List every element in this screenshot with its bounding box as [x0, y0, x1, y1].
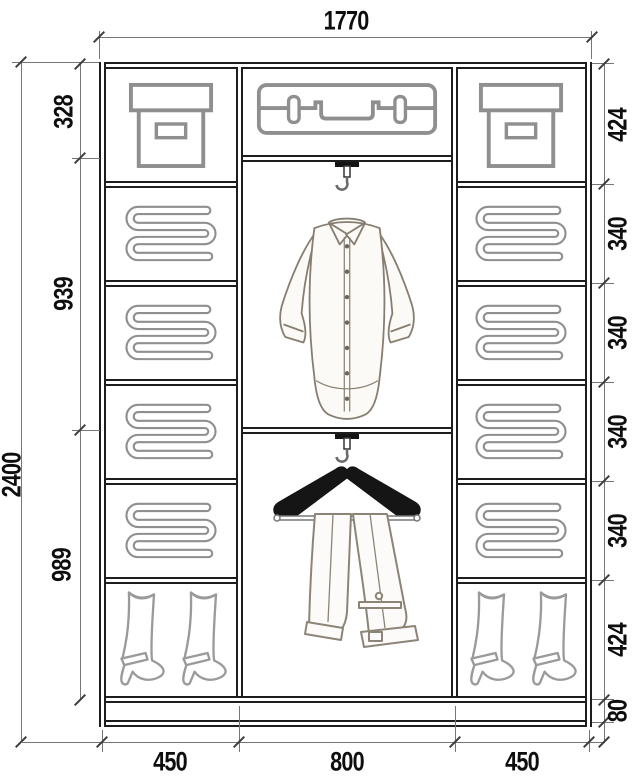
- shelf-left-1: [106, 181, 236, 188]
- boots-icon: [526, 587, 580, 693]
- boots-icon: [464, 587, 518, 693]
- dim-label-bottom-width: 800: [330, 749, 364, 776]
- dim-label-bottom-width: 450: [153, 749, 187, 776]
- folded-clothes-icon: [118, 499, 224, 561]
- shelf-right-1: [458, 181, 585, 188]
- extension-line: [12, 62, 99, 63]
- shelf-right-3: [458, 379, 585, 386]
- dim-line-left-chain: [80, 64, 81, 700]
- dim-line-left-overall: [21, 62, 22, 742]
- extension-line: [239, 706, 240, 752]
- dim-label-right-section: 424: [605, 623, 632, 657]
- cabinet-right-wall: [585, 62, 592, 727]
- dim-label-right-section: 340: [605, 217, 632, 251]
- dim-line-top: [99, 37, 592, 38]
- dim-label-right-section: 340: [605, 316, 632, 350]
- storage-box-icon: [478, 76, 564, 172]
- folded-clothes-icon: [118, 400, 224, 462]
- shelf-center-middle: [243, 427, 451, 434]
- shirt-icon: [256, 190, 438, 426]
- folded-clothes-icon: [118, 202, 224, 264]
- dim-label-right-section: 340: [605, 514, 632, 548]
- folded-clothes-icon: [468, 400, 574, 462]
- dim-label-center-section: 939: [51, 277, 78, 311]
- cabinet-top-edge: [99, 62, 592, 69]
- wardrobe-dimension-scheme: 1770 2400 328 939 989 424 340 340 340 34…: [0, 0, 632, 780]
- dim-label-overall-height: 2400: [0, 453, 26, 498]
- folded-clothes-icon: [468, 202, 574, 264]
- shelf-right-2: [458, 280, 585, 287]
- dim-label-center-section: 328: [51, 95, 78, 129]
- cabinet-left-wall: [99, 62, 106, 727]
- trousers-on-hanger-icon: [257, 462, 437, 672]
- shelf-left-2: [106, 280, 236, 287]
- dim-label-right-section: 424: [605, 108, 632, 142]
- boots-icon: [114, 587, 168, 693]
- extension-line: [455, 706, 456, 752]
- shelf-right-4: [458, 478, 585, 485]
- dim-label-right-section: 80: [605, 700, 632, 722]
- shelf-left-4: [106, 478, 236, 485]
- shelf-left-3: [106, 379, 236, 386]
- partition-left: [236, 67, 243, 697]
- cabinet-bottom-edge: [99, 720, 592, 727]
- dim-label-overall-width: 1770: [324, 8, 369, 35]
- shelf-center-top: [243, 155, 451, 162]
- shelf-right-5: [458, 577, 585, 584]
- shelf-bottom-full: [106, 696, 585, 703]
- partition-right: [451, 67, 458, 697]
- dim-line-bottom: [21, 742, 605, 743]
- storage-box-icon: [128, 76, 214, 172]
- shelf-left-5: [106, 577, 236, 584]
- dim-label-bottom-width: 450: [505, 749, 539, 776]
- folded-clothes-icon: [468, 301, 574, 363]
- dim-label-right-section: 340: [605, 415, 632, 449]
- folded-clothes-icon: [118, 301, 224, 363]
- boots-icon: [176, 587, 230, 693]
- folded-clothes-icon: [468, 499, 574, 561]
- suitcase-icon: [256, 82, 438, 136]
- dim-label-center-section: 989: [49, 548, 76, 582]
